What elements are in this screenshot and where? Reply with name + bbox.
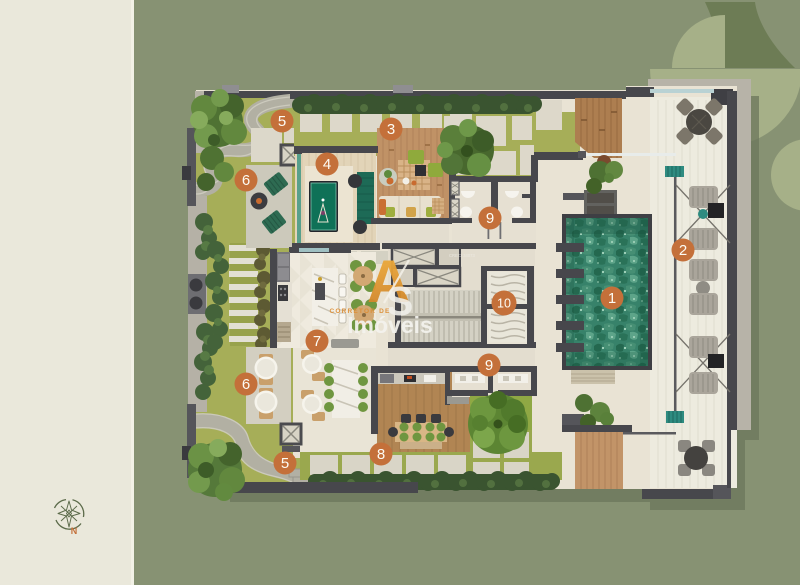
svg-text:3: 3 xyxy=(387,121,395,138)
svg-text:4: 4 xyxy=(323,156,331,173)
svg-text:2: 2 xyxy=(679,242,687,259)
svg-text:7: 7 xyxy=(313,333,321,350)
svg-text:N: N xyxy=(71,526,78,536)
svg-text:5: 5 xyxy=(281,455,289,472)
svg-text:5: 5 xyxy=(278,113,286,130)
svg-text:6: 6 xyxy=(242,172,250,189)
svg-text:10: 10 xyxy=(497,297,511,311)
svg-text:9: 9 xyxy=(486,210,494,227)
svg-text:Imóveis: Imóveis xyxy=(347,312,433,338)
svg-text:CRECI 34073: CRECI 34073 xyxy=(449,253,476,258)
svg-text:9: 9 xyxy=(485,357,493,374)
svg-text:6: 6 xyxy=(242,376,250,393)
svg-text:1: 1 xyxy=(608,290,616,307)
svg-text:8: 8 xyxy=(377,446,385,463)
